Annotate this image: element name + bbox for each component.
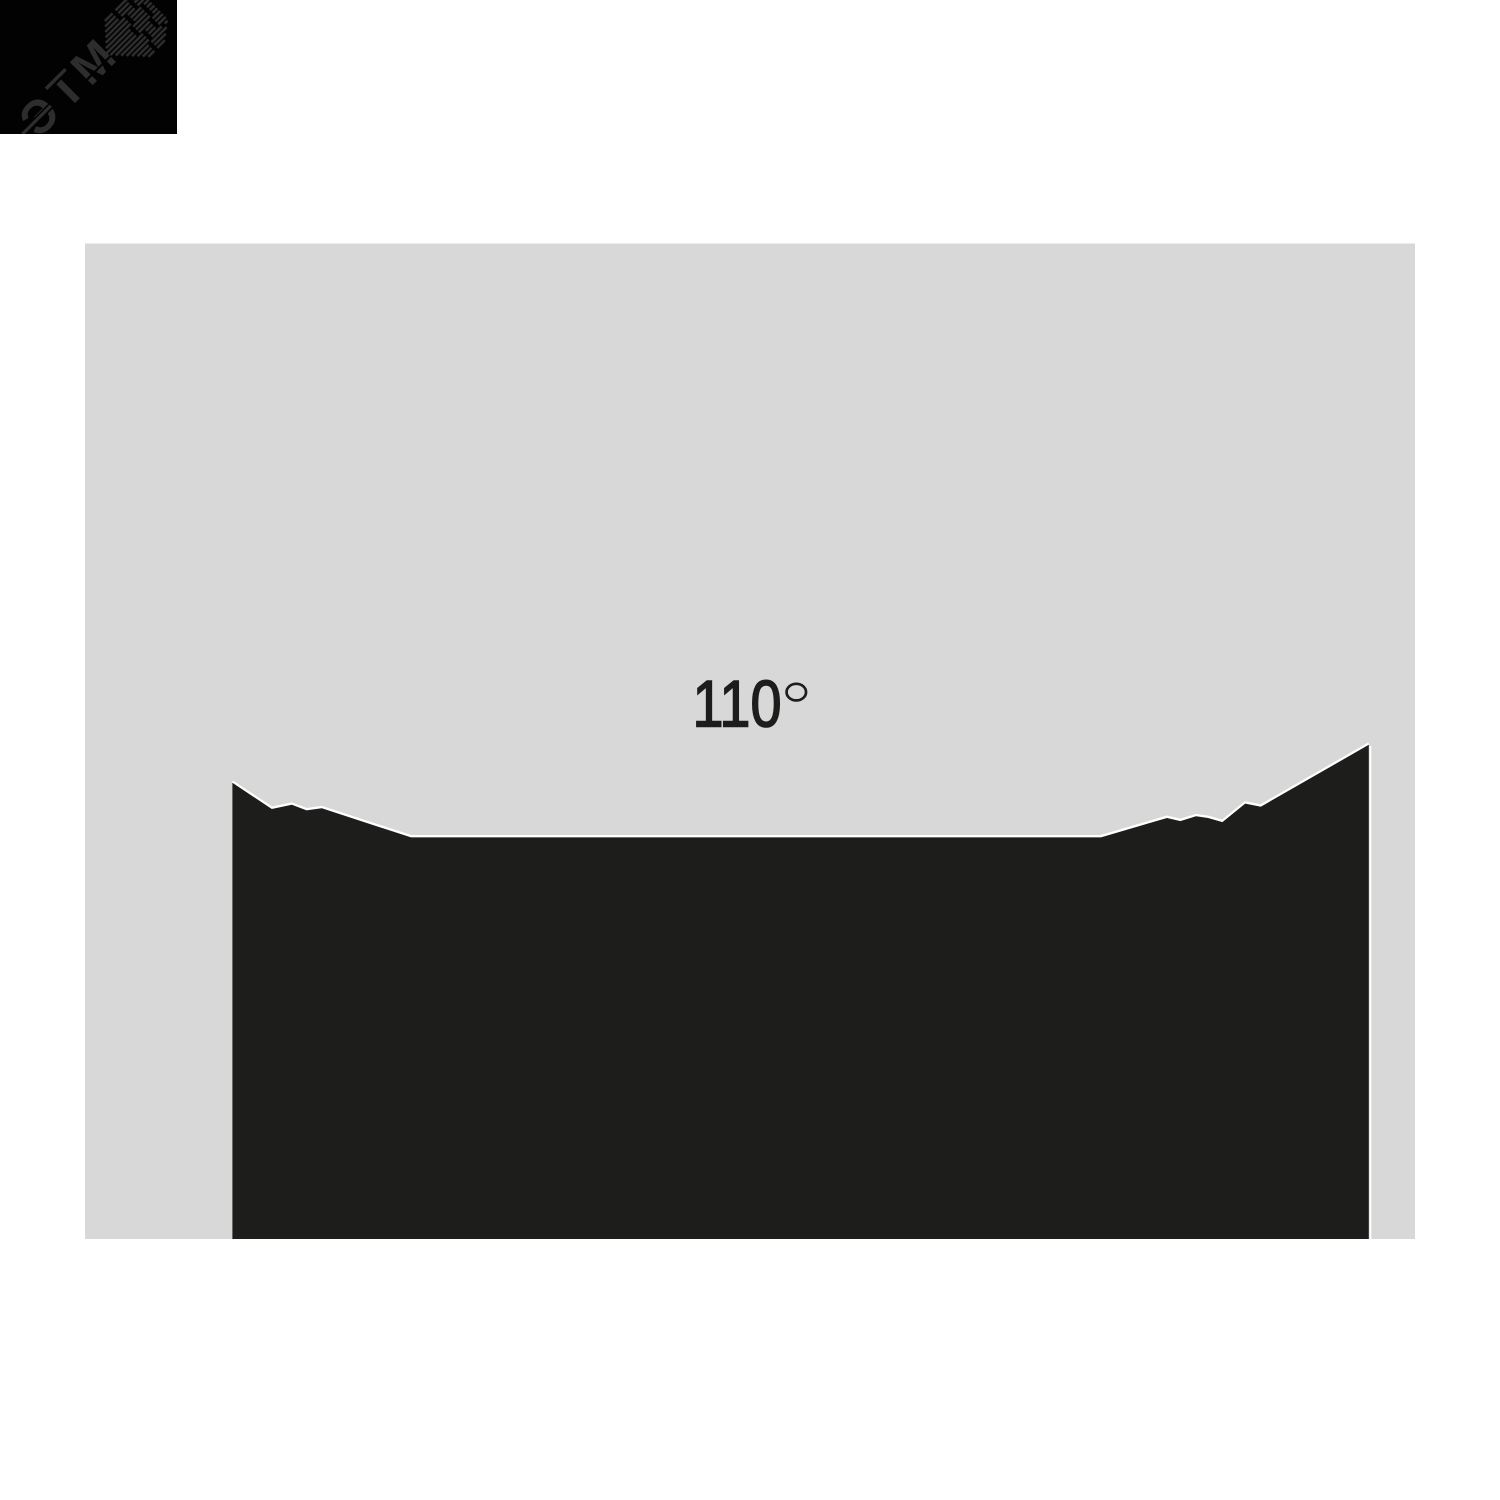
svg-text:110: 110 — [693, 668, 782, 741]
